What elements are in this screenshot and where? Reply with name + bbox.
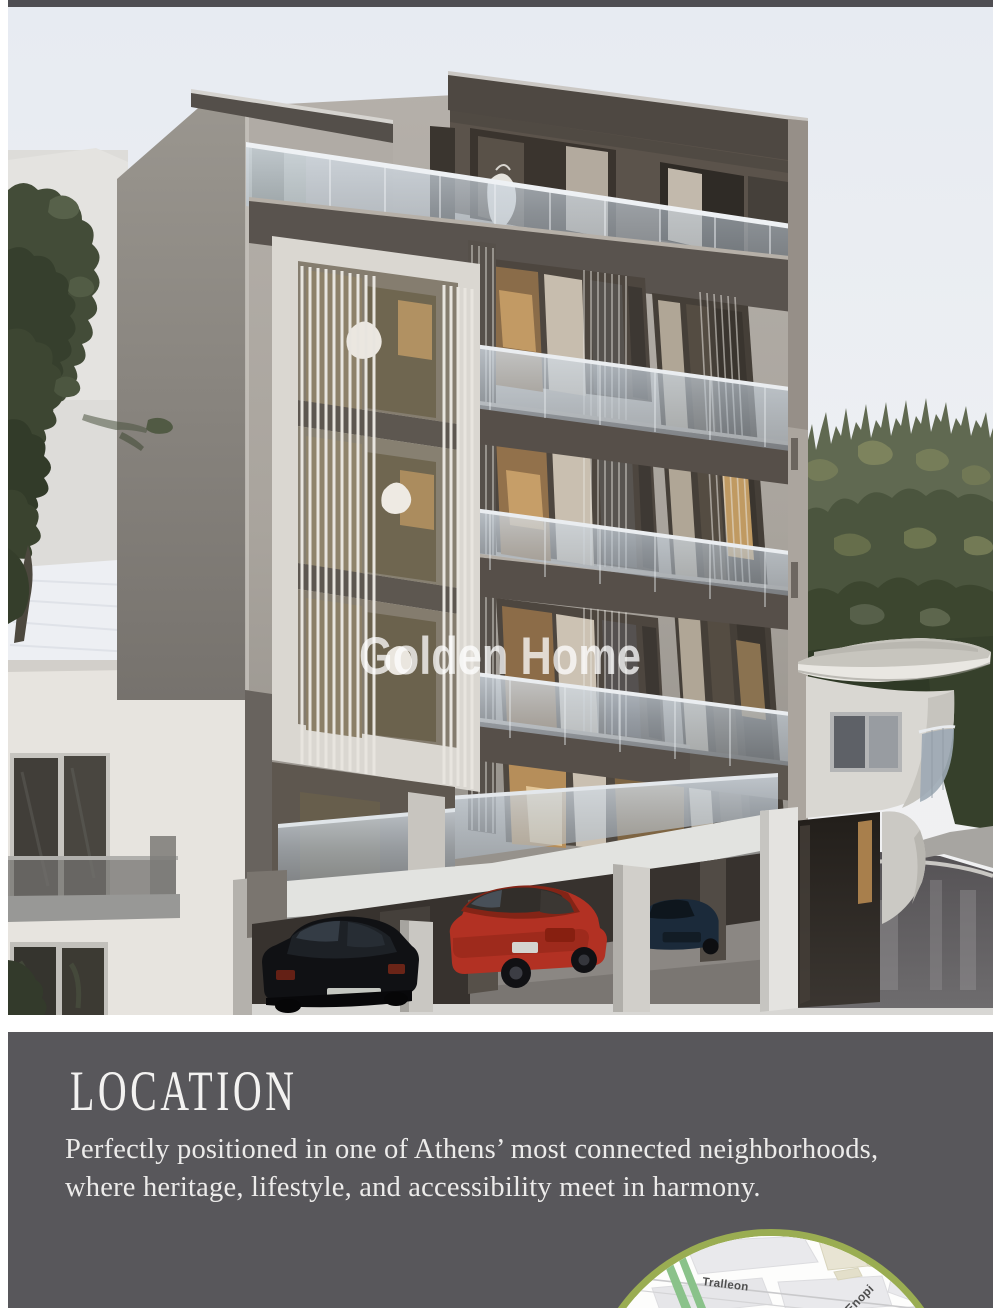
svg-text:Golden Home: Golden Home	[359, 627, 641, 686]
